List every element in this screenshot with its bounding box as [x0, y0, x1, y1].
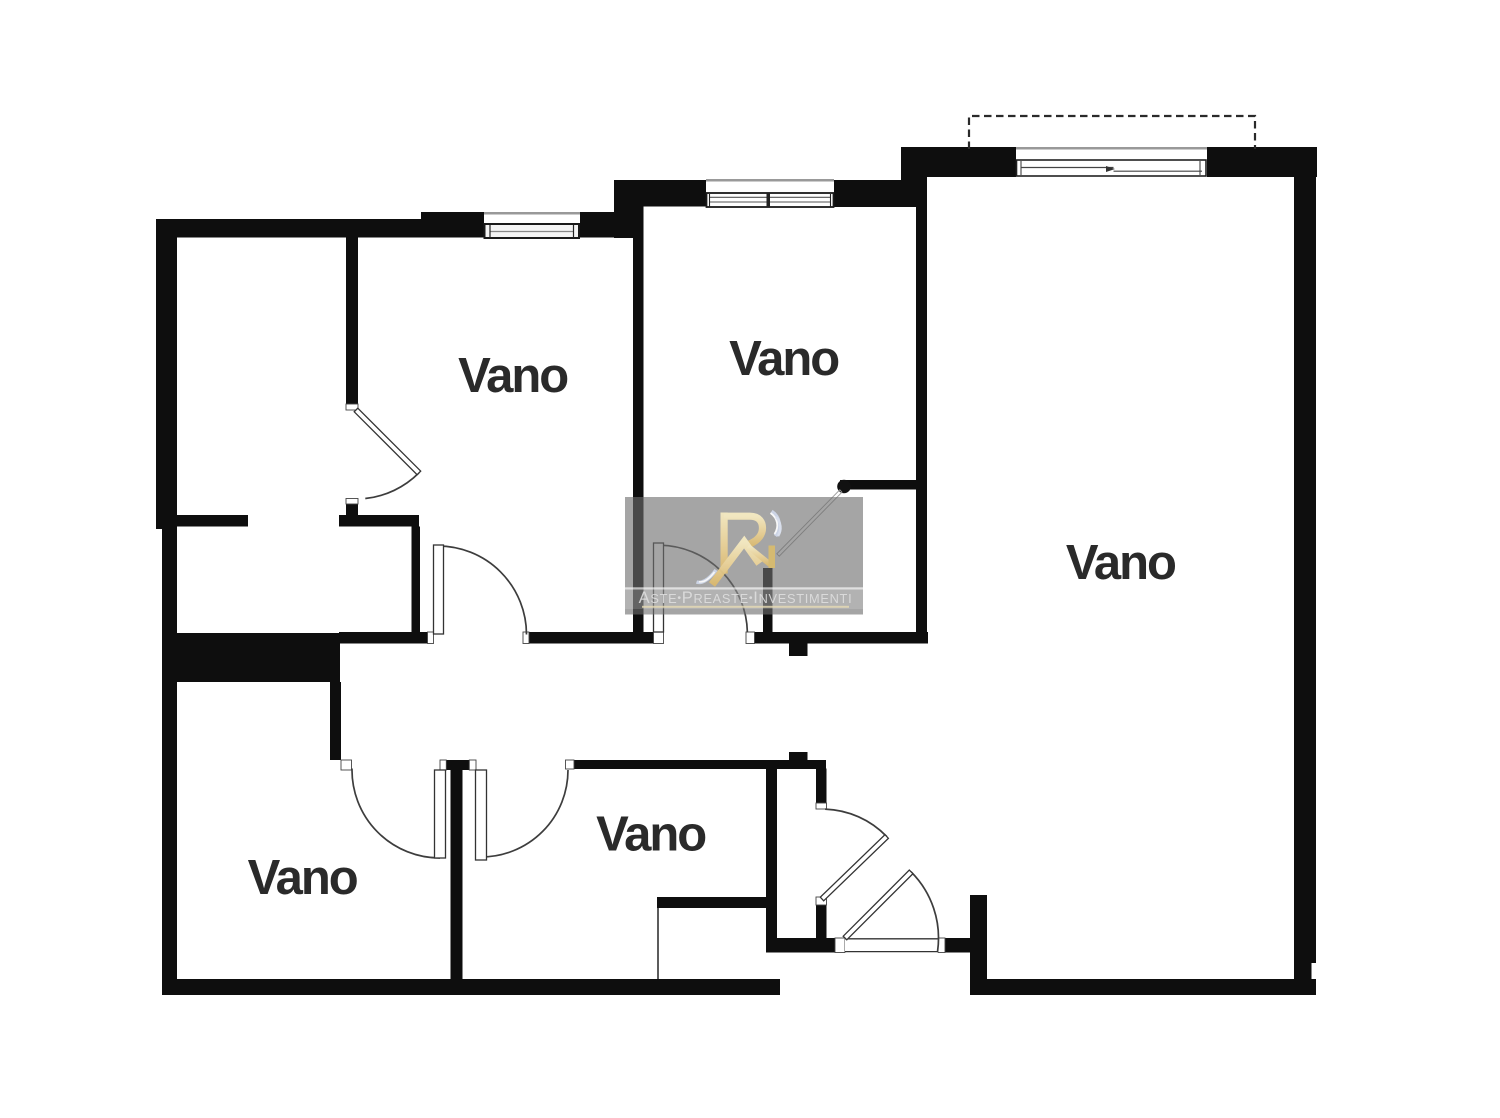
svg-text:Vano: Vano — [458, 349, 568, 403]
svg-text:Vano: Vano — [729, 332, 839, 386]
svg-text:Vano: Vano — [596, 808, 706, 862]
svg-text:Vano: Vano — [248, 851, 358, 905]
svg-text:ASTE•PREASTE•INVESTIMENTI: ASTE•PREASTE•INVESTIMENTI — [639, 589, 853, 607]
svg-text:Vano: Vano — [1066, 536, 1176, 590]
